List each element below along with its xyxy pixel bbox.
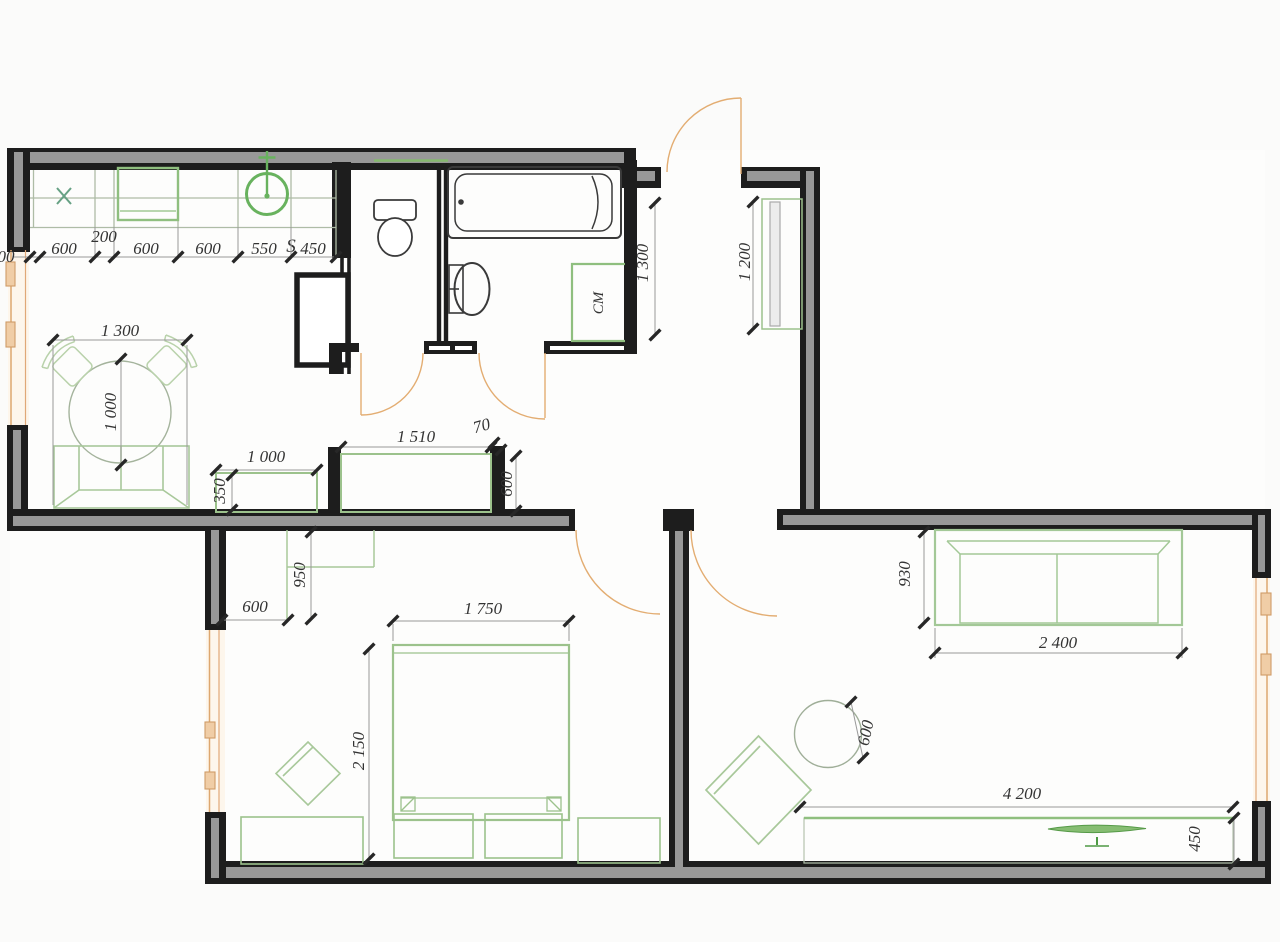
svg-text:450: 450 xyxy=(300,239,326,258)
svg-text:1 300: 1 300 xyxy=(633,243,652,282)
svg-text:2 400: 2 400 xyxy=(1039,633,1078,652)
svg-text:2 150: 2 150 xyxy=(349,731,368,770)
svg-text:4 200: 4 200 xyxy=(1003,784,1042,803)
svg-text:550: 550 xyxy=(251,239,277,258)
svg-text:600: 600 xyxy=(497,471,516,497)
svg-text:00: 00 xyxy=(0,247,15,266)
svg-text:450: 450 xyxy=(1185,826,1204,852)
svg-text:930: 930 xyxy=(895,561,914,587)
svg-text:950: 950 xyxy=(290,562,309,588)
svg-text:600: 600 xyxy=(195,239,221,258)
svg-text:1 000: 1 000 xyxy=(101,392,120,431)
svg-text:СМ: СМ xyxy=(591,290,607,314)
svg-text:1 510: 1 510 xyxy=(397,427,436,446)
svg-text:1 300: 1 300 xyxy=(101,321,140,340)
svg-text:600: 600 xyxy=(242,597,268,616)
svg-text:1 750: 1 750 xyxy=(464,599,503,618)
svg-text:1 200: 1 200 xyxy=(735,242,754,281)
svg-text:1 000: 1 000 xyxy=(247,447,286,466)
svg-text:600: 600 xyxy=(51,239,77,258)
svg-text:200: 200 xyxy=(91,227,117,246)
svg-text:350: 350 xyxy=(210,478,229,505)
svg-text:600: 600 xyxy=(133,239,159,258)
